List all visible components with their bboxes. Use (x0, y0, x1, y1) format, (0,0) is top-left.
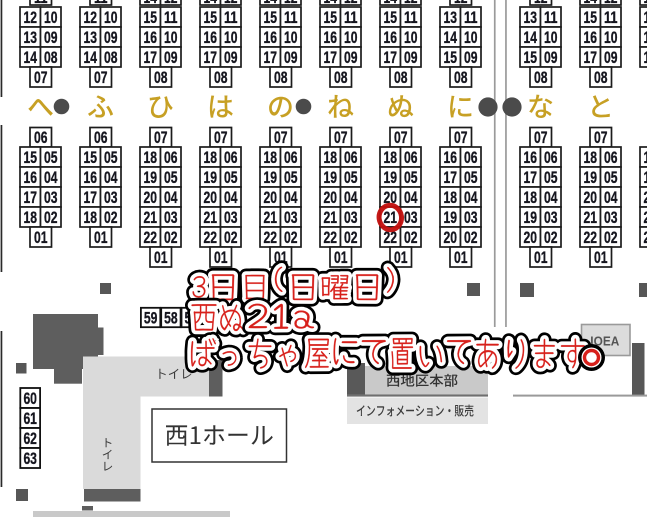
svg-text:03: 03 (104, 188, 118, 207)
svg-text:21: 21 (264, 208, 278, 227)
svg-text:61: 61 (23, 409, 37, 428)
svg-text:08: 08 (334, 68, 348, 87)
svg-text:19: 19 (584, 168, 598, 187)
svg-text:04: 04 (344, 188, 358, 207)
svg-text:09: 09 (344, 48, 358, 67)
svg-text:22: 22 (264, 228, 278, 247)
svg-text:02: 02 (104, 208, 118, 227)
svg-text:02: 02 (544, 228, 558, 247)
svg-text:10: 10 (44, 8, 58, 27)
svg-text:16: 16 (324, 28, 338, 47)
svg-text:12: 12 (284, 0, 298, 7)
svg-text:01: 01 (94, 228, 108, 247)
svg-text:02: 02 (404, 228, 418, 247)
svg-text:15: 15 (204, 8, 218, 27)
svg-text:16: 16 (144, 28, 158, 47)
svg-text:01: 01 (154, 248, 168, 267)
svg-text:08: 08 (594, 68, 608, 87)
svg-text:11: 11 (224, 8, 238, 27)
svg-text:04: 04 (604, 188, 618, 207)
svg-text:15: 15 (144, 8, 158, 27)
svg-text:05: 05 (544, 168, 558, 187)
svg-text:20: 20 (324, 188, 338, 207)
svg-text:16: 16 (524, 148, 538, 167)
svg-text:05: 05 (44, 148, 58, 167)
svg-text:09: 09 (404, 48, 418, 67)
svg-text:06: 06 (544, 148, 558, 167)
svg-text:04: 04 (284, 188, 298, 207)
svg-text:19: 19 (144, 168, 158, 187)
svg-text:15: 15 (324, 8, 338, 27)
svg-text:02: 02 (284, 228, 298, 247)
svg-text:12: 12 (164, 0, 178, 7)
svg-text:19: 19 (324, 168, 338, 187)
svg-text:18: 18 (84, 208, 98, 227)
svg-text:18: 18 (524, 188, 538, 207)
svg-text:09: 09 (164, 48, 178, 67)
svg-text:14: 14 (644, 0, 647, 7)
svg-text:22: 22 (324, 228, 338, 247)
svg-text:17: 17 (584, 48, 598, 67)
svg-text:18: 18 (24, 208, 38, 227)
svg-text:16: 16 (444, 148, 458, 167)
svg-text:60: 60 (23, 389, 37, 408)
svg-text:02: 02 (464, 228, 478, 247)
svg-text:18: 18 (144, 148, 158, 167)
svg-text:14: 14 (524, 28, 538, 47)
svg-text:06: 06 (94, 128, 108, 147)
svg-text:12: 12 (604, 0, 618, 7)
svg-text:03: 03 (284, 208, 298, 227)
svg-text:63: 63 (23, 449, 37, 468)
svg-text:10: 10 (404, 28, 418, 47)
svg-text:10: 10 (284, 28, 298, 47)
svg-text:18: 18 (324, 148, 338, 167)
svg-text:09: 09 (544, 48, 558, 67)
svg-text:12: 12 (24, 8, 38, 27)
svg-text:17: 17 (144, 48, 158, 67)
svg-text:13: 13 (524, 8, 538, 27)
svg-text:17: 17 (384, 48, 398, 67)
svg-text:11: 11 (164, 8, 178, 27)
svg-text:22: 22 (644, 228, 647, 247)
svg-text:18: 18 (204, 148, 218, 167)
svg-text:19: 19 (444, 208, 458, 227)
svg-text:10: 10 (224, 28, 238, 47)
svg-text:14: 14 (264, 0, 278, 7)
svg-text:07: 07 (214, 128, 228, 147)
svg-text:09: 09 (224, 48, 238, 67)
svg-text:14: 14 (204, 0, 218, 7)
svg-text:05: 05 (404, 168, 418, 187)
svg-text:20: 20 (144, 188, 158, 207)
svg-text:03: 03 (464, 208, 478, 227)
svg-text:10: 10 (604, 28, 618, 47)
svg-text:02: 02 (344, 228, 358, 247)
svg-text:08: 08 (394, 68, 408, 87)
svg-text:16: 16 (264, 28, 278, 47)
svg-text:04: 04 (44, 168, 58, 187)
svg-text:21: 21 (324, 208, 338, 227)
svg-text:17: 17 (204, 48, 218, 67)
svg-text:14: 14 (384, 0, 398, 7)
svg-text:12: 12 (454, 0, 468, 7)
svg-text:09: 09 (284, 48, 298, 67)
svg-text:02: 02 (164, 228, 178, 247)
svg-text:14: 14 (84, 48, 98, 67)
svg-text:02: 02 (604, 228, 618, 247)
svg-text:14: 14 (144, 0, 158, 7)
svg-text:15: 15 (644, 8, 647, 27)
svg-text:01: 01 (214, 248, 228, 267)
svg-text:03: 03 (404, 208, 418, 227)
svg-text:15: 15 (84, 148, 98, 167)
svg-text:03: 03 (544, 208, 558, 227)
svg-text:07: 07 (274, 128, 288, 147)
svg-text:07: 07 (394, 128, 408, 147)
svg-text:06: 06 (404, 148, 418, 167)
svg-text:16: 16 (84, 168, 98, 187)
svg-text:21: 21 (384, 208, 398, 227)
svg-text:20: 20 (524, 228, 538, 247)
svg-text:04: 04 (164, 188, 178, 207)
svg-text:17: 17 (644, 48, 647, 67)
svg-text:21: 21 (144, 208, 158, 227)
svg-text:62: 62 (23, 429, 37, 448)
svg-text:05: 05 (464, 168, 478, 187)
svg-text:17: 17 (264, 48, 278, 67)
svg-text:01: 01 (534, 248, 548, 267)
svg-text:18: 18 (644, 148, 647, 167)
svg-text:16: 16 (384, 28, 398, 47)
svg-text:10: 10 (164, 28, 178, 47)
svg-text:17: 17 (524, 168, 538, 187)
svg-text:12: 12 (344, 0, 358, 7)
svg-text:02: 02 (44, 208, 58, 227)
svg-text:07: 07 (34, 68, 48, 87)
svg-text:10: 10 (104, 8, 118, 27)
svg-text:18: 18 (444, 188, 458, 207)
svg-text:11: 11 (464, 8, 478, 27)
svg-text:04: 04 (464, 188, 478, 207)
svg-text:02: 02 (224, 228, 238, 247)
svg-text:07: 07 (94, 68, 108, 87)
svg-text:07: 07 (334, 128, 348, 147)
svg-text:04: 04 (104, 168, 118, 187)
svg-text:04: 04 (224, 188, 238, 207)
svg-text:19: 19 (524, 208, 538, 227)
svg-text:15: 15 (24, 148, 38, 167)
svg-text:08: 08 (274, 68, 288, 87)
svg-text:16: 16 (24, 168, 38, 187)
svg-text:01: 01 (394, 248, 408, 267)
svg-text:20: 20 (584, 188, 598, 207)
svg-text:19: 19 (644, 168, 647, 187)
svg-text:08: 08 (44, 48, 58, 67)
svg-text:07: 07 (154, 128, 168, 147)
svg-text:16: 16 (204, 28, 218, 47)
svg-text:08: 08 (214, 68, 228, 87)
svg-text:17: 17 (24, 188, 38, 207)
svg-text:19: 19 (204, 168, 218, 187)
svg-text:05: 05 (604, 168, 618, 187)
svg-text:21: 21 (584, 208, 598, 227)
svg-text:10: 10 (344, 28, 358, 47)
svg-text:08: 08 (154, 68, 168, 87)
svg-text:14: 14 (444, 28, 458, 47)
svg-text:06: 06 (344, 148, 358, 167)
svg-text:06: 06 (164, 148, 178, 167)
svg-text:09: 09 (464, 48, 478, 67)
svg-text:05: 05 (284, 168, 298, 187)
svg-text:09: 09 (604, 48, 618, 67)
svg-text:07: 07 (594, 128, 608, 147)
svg-text:03: 03 (604, 208, 618, 227)
svg-text:22: 22 (204, 228, 218, 247)
svg-text:12: 12 (534, 0, 548, 7)
svg-text:03: 03 (224, 208, 238, 227)
svg-text:09: 09 (104, 28, 118, 47)
svg-text:13: 13 (444, 8, 458, 27)
svg-text:12: 12 (84, 8, 98, 27)
svg-text:05: 05 (164, 168, 178, 187)
svg-text:11: 11 (34, 0, 48, 7)
svg-text:18: 18 (384, 148, 398, 167)
svg-text:14: 14 (24, 48, 38, 67)
svg-text:06: 06 (284, 148, 298, 167)
svg-text:16: 16 (644, 28, 647, 47)
svg-text:22: 22 (584, 228, 598, 247)
svg-text:21: 21 (644, 208, 647, 227)
svg-text:06: 06 (604, 148, 618, 167)
svg-text:11: 11 (94, 0, 108, 7)
svg-text:08: 08 (454, 68, 468, 87)
svg-text:13: 13 (24, 28, 38, 47)
svg-text:11: 11 (344, 8, 358, 27)
svg-text:20: 20 (264, 188, 278, 207)
svg-text:59: 59 (144, 308, 158, 327)
svg-text:18: 18 (584, 148, 598, 167)
svg-text:15: 15 (584, 8, 598, 27)
svg-text:06: 06 (224, 148, 238, 167)
svg-text:21: 21 (204, 208, 218, 227)
svg-text:58: 58 (164, 308, 178, 327)
svg-text:05: 05 (344, 168, 358, 187)
svg-text:01: 01 (334, 248, 348, 267)
svg-text:14: 14 (584, 0, 598, 7)
svg-text:15: 15 (384, 8, 398, 27)
svg-text:04: 04 (544, 188, 558, 207)
svg-text:03: 03 (344, 208, 358, 227)
svg-text:12: 12 (224, 0, 238, 7)
svg-text:06: 06 (34, 128, 48, 147)
svg-text:01: 01 (454, 248, 468, 267)
svg-text:17: 17 (324, 48, 338, 67)
svg-text:18: 18 (264, 148, 278, 167)
svg-text:07: 07 (454, 128, 468, 147)
svg-text:05: 05 (104, 148, 118, 167)
svg-text:03: 03 (164, 208, 178, 227)
svg-text:09: 09 (44, 28, 58, 47)
svg-text:13: 13 (84, 28, 98, 47)
svg-text:12: 12 (404, 0, 418, 7)
svg-text:07: 07 (534, 128, 548, 147)
svg-text:08: 08 (534, 68, 548, 87)
svg-text:05: 05 (224, 168, 238, 187)
svg-text:17: 17 (84, 188, 98, 207)
svg-text:17: 17 (444, 168, 458, 187)
svg-text:03: 03 (44, 188, 58, 207)
svg-text:19: 19 (264, 168, 278, 187)
svg-text:10: 10 (464, 28, 478, 47)
svg-text:01: 01 (594, 248, 608, 267)
svg-text:11: 11 (604, 8, 618, 27)
svg-text:20: 20 (444, 228, 458, 247)
svg-text:15: 15 (444, 48, 458, 67)
svg-text:20: 20 (204, 188, 218, 207)
svg-text:01: 01 (34, 228, 48, 247)
svg-text:16: 16 (584, 28, 598, 47)
svg-text:22: 22 (144, 228, 158, 247)
svg-text:11: 11 (284, 8, 298, 27)
svg-text:10: 10 (544, 28, 558, 47)
svg-text:15: 15 (524, 48, 538, 67)
svg-text:19: 19 (384, 168, 398, 187)
svg-text:11: 11 (404, 8, 418, 27)
svg-text:20: 20 (644, 188, 647, 207)
svg-text:08: 08 (104, 48, 118, 67)
svg-text:04: 04 (404, 188, 418, 207)
svg-text:06: 06 (464, 148, 478, 167)
svg-text:14: 14 (324, 0, 338, 7)
svg-text:15: 15 (264, 8, 278, 27)
svg-text:11: 11 (544, 8, 558, 27)
